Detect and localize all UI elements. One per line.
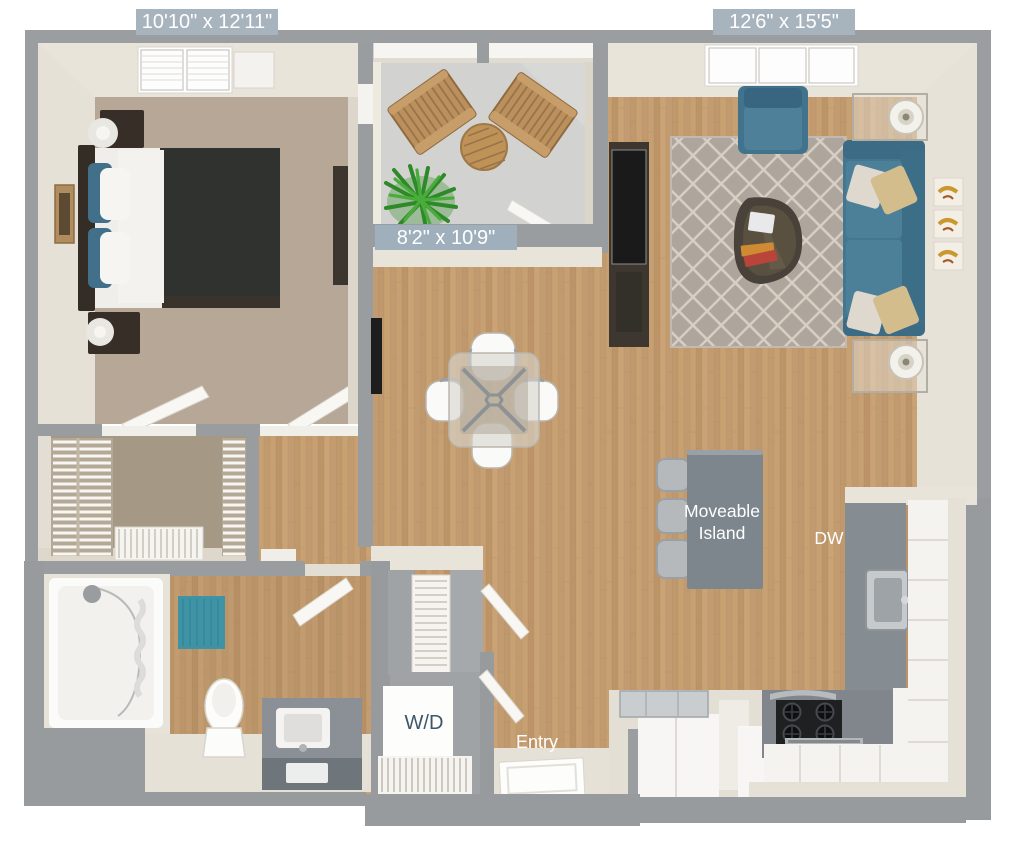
- svg-text:Entry: Entry: [516, 732, 558, 752]
- svg-text:Island: Island: [699, 523, 746, 543]
- svg-text:W/D: W/D: [405, 712, 444, 734]
- svg-text:10'10" x 12'11": 10'10" x 12'11": [142, 11, 272, 33]
- svg-text:Moveable: Moveable: [684, 501, 760, 521]
- svg-text:8'2" x 10'9": 8'2" x 10'9": [397, 227, 496, 249]
- svg-text:DW: DW: [814, 528, 844, 548]
- svg-text:12'6" x 15'5": 12'6" x 15'5": [729, 11, 839, 33]
